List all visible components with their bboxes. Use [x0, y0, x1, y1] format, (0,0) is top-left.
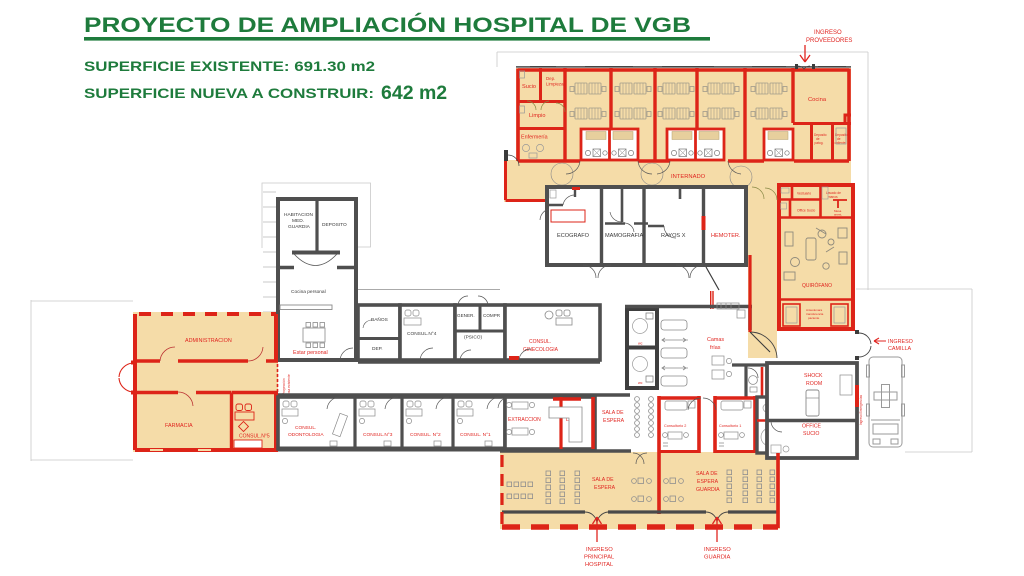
svg-text:Cocina: Cocina [808, 97, 827, 103]
svg-text:SUPERFICIE NUEVA A CONSTRUIR:: SUPERFICIE NUEVA A CONSTRUIR: [84, 85, 374, 101]
svg-text:CONSUL.: CONSUL. [529, 339, 551, 345]
svg-text:Limpieza: Limpieza [546, 82, 564, 87]
svg-text:Estar personal: Estar personal [293, 350, 328, 356]
svg-text:INGRESO: INGRESO [814, 30, 842, 36]
svg-text:frías: frías [710, 345, 721, 351]
svg-text:CAMILLA: CAMILLA [888, 346, 911, 352]
svg-text:CONSUL.N°4: CONSUL.N°4 [407, 331, 437, 337]
svg-text:Sucio: Sucio [522, 84, 536, 90]
svg-text:anest.: anest. [834, 213, 842, 217]
svg-text:paciente: paciente [808, 316, 820, 320]
svg-text:GUARDIA: GUARDIA [704, 555, 731, 561]
svg-text:manos: manos [828, 195, 838, 199]
svg-text:COMPR: COMPR [483, 313, 501, 318]
svg-text:CONSUL. N°1: CONSUL. N°1 [460, 432, 491, 438]
svg-text:INGRESO: INGRESO [586, 547, 613, 553]
svg-text:Vestuario: Vestuario [797, 192, 811, 196]
svg-text:FARMACIA: FARMACIA [165, 423, 193, 429]
svg-text:GINECOLOGIA: GINECOLOGIA [523, 347, 559, 353]
svg-text:losa existente: losa existente [287, 374, 291, 395]
svg-text:ESPERA: ESPERA [697, 479, 719, 485]
svg-text:Consultorio 1: Consultorio 1 [719, 424, 741, 428]
svg-text:Enfermería: Enfermería [521, 135, 548, 141]
svg-text:EXTRACCION: EXTRACCION [508, 417, 541, 423]
svg-text:ADMINISTRACION: ADMINISTRACION [185, 338, 232, 344]
svg-text:INGRESO: INGRESO [704, 547, 731, 553]
svg-text:HEMOTER.: HEMOTER. [711, 233, 741, 239]
svg-text:wc: wc [638, 342, 643, 346]
svg-text:OFFICE: OFFICE [802, 424, 822, 430]
svg-text:PRINCIPAL: PRINCIPAL [584, 555, 615, 561]
svg-text:HOSPITAL: HOSPITAL [585, 562, 614, 568]
svg-text:Dep.: Dep. [546, 76, 555, 81]
svg-text:SALA DE: SALA DE [602, 410, 624, 416]
svg-text:CONSUL.: CONSUL. [295, 425, 316, 431]
svg-text:BAÑOS: BAÑOS [371, 316, 388, 323]
svg-text:SUCIO: SUCIO [803, 431, 819, 437]
svg-text:Limpio: Limpio [529, 113, 545, 119]
svg-text:ECOGRAFO: ECOGRAFO [557, 233, 590, 239]
svg-text:DEP.: DEP. [372, 346, 383, 352]
svg-text:ESPERA: ESPERA [594, 485, 616, 491]
svg-text:wc: wc [638, 381, 643, 385]
svg-text:RAYOS X: RAYOS X [661, 233, 686, 239]
svg-text:CONSUL.N°3: CONSUL.N°3 [363, 432, 393, 438]
svg-text:Office Sucio: Office Sucio [797, 209, 815, 213]
svg-text:patog.: patog. [815, 141, 824, 145]
svg-text:Consultorio 2: Consultorio 2 [664, 424, 686, 428]
svg-text:ESPERA: ESPERA [603, 418, 625, 424]
svg-text:INGRESO: INGRESO [888, 339, 913, 345]
svg-text:PROVEEDORES: PROVEEDORES [806, 38, 852, 44]
svg-text:PROYECTO DE AMPLIACIÓN HOSPITA: PROYECTO DE AMPLIACIÓN HOSPITAL DE VGB [84, 12, 691, 37]
svg-text:CONSUL.N°5: CONSUL.N°5 [239, 434, 270, 440]
svg-text:INTERNADO: INTERNADO [671, 174, 706, 180]
svg-text:Cocina personal: Cocina personal [291, 289, 326, 295]
svg-text:MED.: MED. [292, 218, 304, 224]
svg-text:(PSICO): (PSICO) [464, 335, 483, 341]
svg-text:GUARDIA: GUARDIA [288, 224, 311, 230]
svg-text:MAMOGRAFIA: MAMOGRAFIA [605, 233, 643, 239]
svg-text:DEPOSITO: DEPOSITO [322, 222, 347, 228]
svg-text:CONSUL. N°2: CONSUL. N°2 [410, 432, 441, 438]
svg-text:SUPERFICIE EXISTENTE: 691.30 m: SUPERFICIE EXISTENTE: 691.30 m2 [84, 58, 375, 74]
svg-text:ROOM: ROOM [806, 381, 822, 387]
svg-text:Proyección: Proyección [282, 378, 286, 395]
svg-text:Ingreso Emergencias: Ingreso Emergencias [859, 394, 863, 425]
svg-text:SALA DE: SALA DE [592, 477, 614, 483]
svg-text:QUIRÓFANO: QUIRÓFANO [802, 282, 832, 289]
svg-text:SHOCK: SHOCK [804, 373, 823, 379]
svg-text:HABITACION: HABITACION [284, 212, 313, 218]
svg-text:GUARDIA: GUARDIA [696, 487, 720, 493]
svg-text:GENER.: GENER. [457, 313, 475, 318]
svg-text:ODONTOLOGIA: ODONTOLOGIA [288, 432, 324, 438]
svg-text:Camas: Camas [707, 337, 724, 343]
svg-text:SALA DE: SALA DE [696, 471, 718, 477]
svg-text:642 m2: 642 m2 [381, 82, 447, 104]
